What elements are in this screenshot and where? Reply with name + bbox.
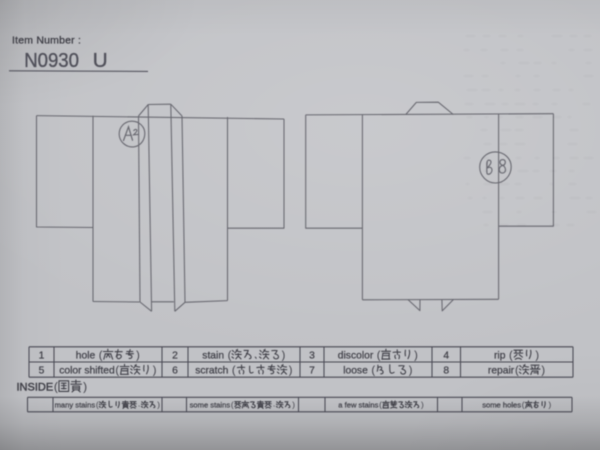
svg-text:Item Number :: Item Number : bbox=[12, 35, 81, 47]
svg-text:): ) bbox=[409, 365, 413, 377]
svg-text:(: ( bbox=[99, 349, 103, 361]
svg-text:): ) bbox=[414, 349, 418, 361]
svg-text:scratch: scratch bbox=[195, 366, 228, 377]
svg-text:3: 3 bbox=[309, 350, 315, 361]
svg-text:INSIDE: INSIDE bbox=[17, 381, 54, 393]
svg-text:(: ( bbox=[515, 365, 519, 377]
svg-text:stain: stain bbox=[202, 350, 224, 361]
svg-text:some stains: some stains bbox=[190, 400, 231, 409]
svg-text:): ) bbox=[289, 365, 293, 377]
svg-text:4: 4 bbox=[443, 350, 449, 361]
svg-text:): ) bbox=[421, 400, 424, 409]
svg-text:6: 6 bbox=[172, 366, 178, 377]
svg-text:(: ( bbox=[228, 349, 232, 361]
svg-text:): ) bbox=[535, 349, 539, 361]
svg-text:(: ( bbox=[509, 349, 513, 361]
svg-text:7: 7 bbox=[309, 366, 315, 377]
svg-text:N0930: N0930 bbox=[24, 49, 79, 72]
svg-text:2: 2 bbox=[172, 350, 178, 361]
svg-text:some holes: some holes bbox=[482, 400, 521, 409]
svg-text:(: ( bbox=[96, 400, 99, 409]
svg-text:repair: repair bbox=[488, 366, 515, 377]
svg-text:(: ( bbox=[115, 365, 119, 377]
svg-text:discolor: discolor bbox=[338, 350, 374, 361]
svg-text:(: ( bbox=[231, 400, 234, 409]
svg-text:rip: rip bbox=[494, 350, 506, 361]
svg-text:): ) bbox=[282, 349, 286, 361]
svg-text:5: 5 bbox=[39, 366, 45, 377]
svg-text:(: ( bbox=[371, 365, 375, 377]
svg-text:loose: loose bbox=[343, 366, 368, 377]
svg-text:(: ( bbox=[54, 379, 58, 393]
svg-text:(: ( bbox=[377, 349, 381, 361]
svg-text:): ) bbox=[549, 400, 552, 409]
svg-text:(: ( bbox=[379, 400, 382, 409]
svg-text:hole: hole bbox=[76, 350, 96, 361]
svg-text:(: ( bbox=[232, 365, 236, 377]
svg-text:): ) bbox=[83, 379, 87, 393]
svg-text:color shifted: color shifted bbox=[59, 366, 115, 377]
svg-text:8: 8 bbox=[443, 366, 449, 377]
svg-text:): ) bbox=[541, 365, 545, 377]
svg-text:(: ( bbox=[522, 400, 525, 409]
svg-text:): ) bbox=[292, 400, 295, 409]
svg-text:): ) bbox=[157, 400, 160, 409]
svg-text:1: 1 bbox=[39, 350, 45, 361]
svg-text:U: U bbox=[93, 49, 108, 72]
svg-text:): ) bbox=[136, 349, 140, 361]
svg-text:): ) bbox=[153, 365, 157, 377]
svg-text:many stains: many stains bbox=[55, 400, 96, 409]
svg-text:a few stains: a few stains bbox=[338, 400, 378, 409]
